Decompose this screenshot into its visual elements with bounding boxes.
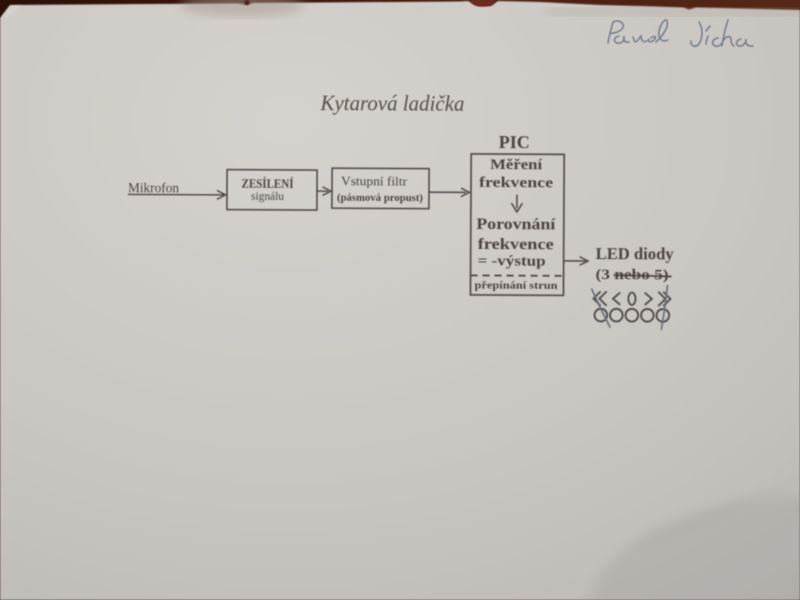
svg-text:(pásmová propust): (pásmová propust)	[337, 193, 423, 204]
svg-text:frekvence: frekvence	[478, 236, 554, 253]
svg-text:Mikrofon: Mikrofon	[128, 180, 179, 195]
svg-text:LED diody: LED diody	[596, 244, 675, 263]
svg-text:signálu: signálu	[251, 189, 284, 203]
svg-text:Vstupní filtr: Vstupní filtr	[341, 174, 408, 188]
svg-text:Porovnání: Porovnání	[476, 216, 556, 233]
svg-text:Kytarová ladička: Kytarová ladička	[319, 90, 464, 116]
svg-text:PIC: PIC	[499, 132, 530, 152]
svg-text:frekvence: frekvence	[479, 175, 553, 191]
svg-text:Měření: Měření	[490, 157, 543, 173]
svg-text:přepínání strun: přepínání strun	[474, 279, 557, 291]
svg-text:= -výstup: = -výstup	[478, 253, 546, 269]
